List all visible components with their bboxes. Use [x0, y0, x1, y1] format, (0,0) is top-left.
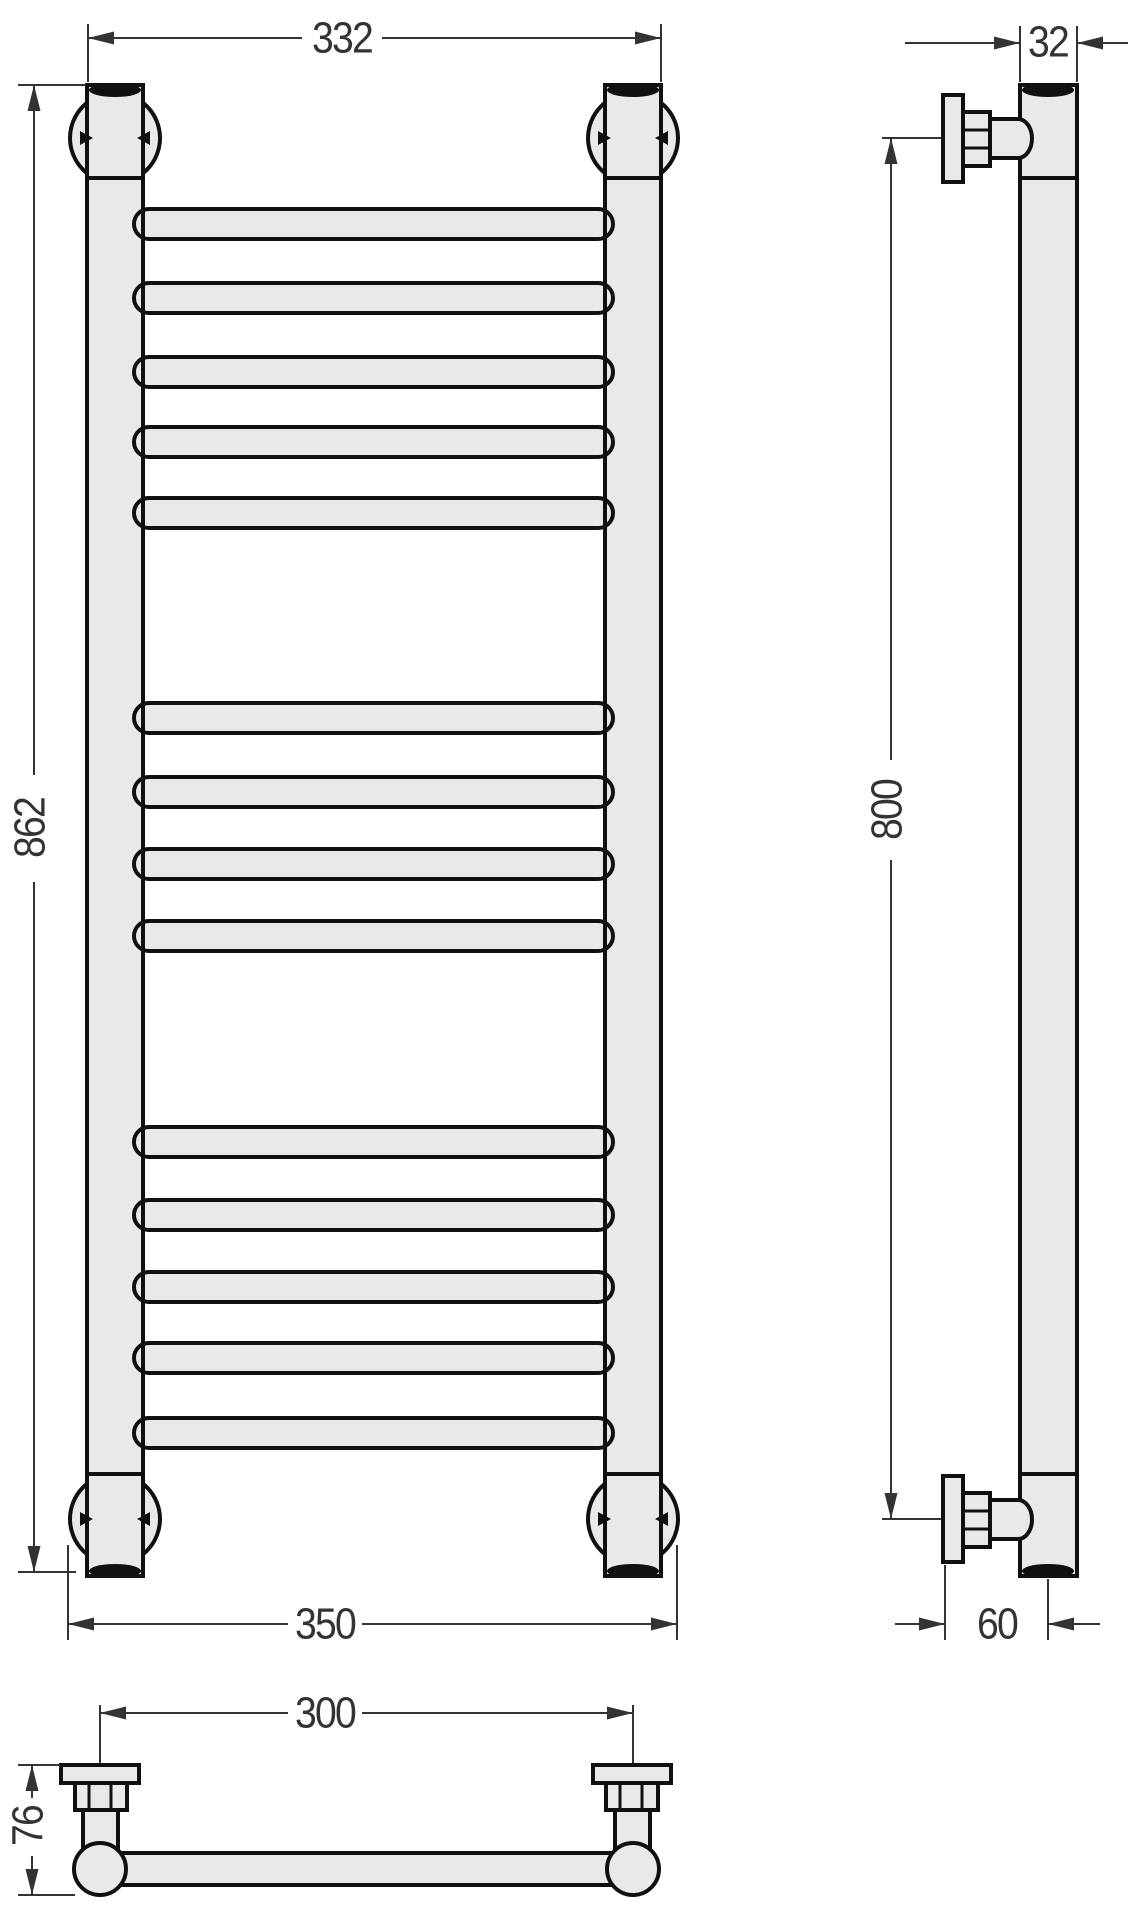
dim-side-tube-width: 32 — [905, 18, 1128, 83]
rung — [134, 921, 613, 951]
dimension-arrow — [26, 1869, 39, 1895]
dim-label-front-top-width: 332 — [312, 14, 372, 63]
dimension-arrow — [885, 138, 898, 164]
rung — [134, 1272, 613, 1302]
dimension-arrow — [919, 1618, 945, 1631]
tube-end-cap — [89, 83, 141, 97]
dim-front-top-width: 332 — [88, 14, 661, 83]
bracket-hex-nut — [75, 1783, 127, 1810]
rung — [134, 777, 613, 807]
dimension-arrow — [68, 1618, 94, 1631]
bracket-hex-nut — [963, 112, 990, 166]
dim-side-mount-pitch: 800 — [863, 138, 942, 1519]
rung — [134, 283, 613, 313]
rung — [134, 1200, 613, 1230]
side-view — [943, 83, 1077, 1578]
rung — [134, 849, 613, 879]
dimension-arrow — [607, 1707, 633, 1720]
wall-flange — [943, 1476, 963, 1562]
bracket-hex-nut — [606, 1783, 658, 1810]
drawing-canvas: 332862350328006030076 — [0, 0, 1142, 1920]
post-section-circle — [607, 1843, 659, 1895]
bracket-hex-nut — [963, 1493, 990, 1547]
wall-flange — [61, 1765, 139, 1783]
dimension-arrow — [26, 1765, 39, 1791]
dim-front-bottom-width: 350 — [68, 1545, 677, 1649]
tube-end-cap — [1022, 1564, 1074, 1578]
dim-label-side-mount-pitch: 800 — [863, 780, 912, 840]
dimension-arrow — [100, 1707, 126, 1720]
dimension-arrow — [635, 32, 661, 45]
rung — [134, 1343, 613, 1373]
dimension-arrow — [885, 1493, 898, 1519]
dim-plan-mount-pitch: 300 — [100, 1689, 633, 1764]
wall-flange — [593, 1765, 671, 1783]
bracket-stem — [990, 119, 1032, 158]
technical-drawing: 332862350328006030076 — [0, 0, 1142, 1920]
rail-tube-plan — [100, 1853, 633, 1885]
post-section-circle — [74, 1843, 126, 1895]
dim-label-side-wall-offset: 60 — [977, 1600, 1017, 1649]
plan-view — [61, 1765, 671, 1895]
dimension-arrow — [28, 1546, 41, 1572]
dimension-arrow — [651, 1618, 677, 1631]
rung — [134, 209, 613, 239]
dimension-arrow — [28, 85, 41, 111]
wall-flange — [943, 95, 963, 182]
dim-label-side-tube-width: 32 — [1028, 18, 1068, 67]
rung — [134, 357, 613, 387]
dim-label-plan-mount-pitch: 300 — [295, 1689, 355, 1738]
rung — [134, 427, 613, 457]
rung — [134, 703, 613, 733]
dim-label-front-bottom-width: 350 — [295, 1600, 355, 1649]
dimension-arrow — [1077, 37, 1103, 50]
tube-end-cap — [89, 1564, 141, 1578]
side-tube — [1020, 85, 1077, 1576]
dim-label-front-height: 862 — [6, 798, 55, 858]
front-view — [70, 83, 678, 1578]
dimension-arrow — [88, 32, 114, 45]
dimension-arrow — [1048, 1618, 1074, 1631]
dim-front-height: 862 — [6, 85, 87, 1572]
rung — [134, 1418, 613, 1448]
dimension-arrow — [994, 37, 1020, 50]
tube-end-cap — [1022, 83, 1074, 97]
rung — [134, 498, 613, 528]
bracket-stem — [990, 1500, 1032, 1539]
rung — [134, 1127, 613, 1157]
tube-end-cap — [607, 1564, 659, 1578]
tube-end-cap — [607, 83, 659, 97]
dim-label-plan-depth: 76 — [4, 1806, 53, 1846]
